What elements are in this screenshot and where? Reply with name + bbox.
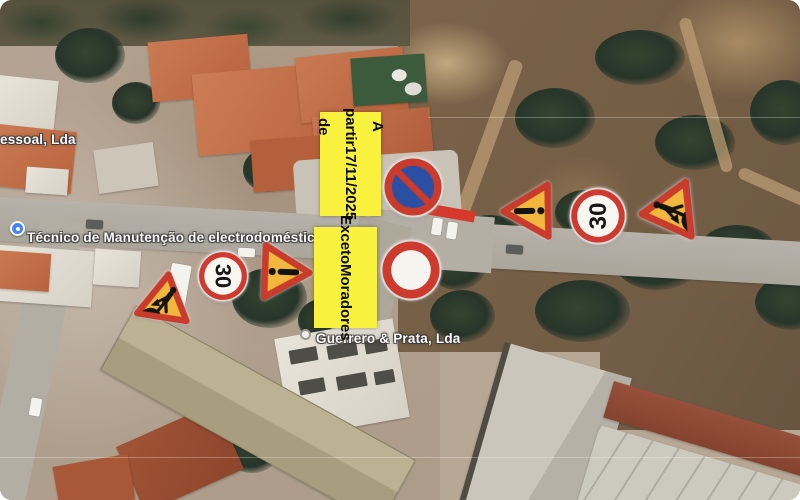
notice-exception-line2: Moradores (332, 264, 359, 341)
notice-start-date: A partir de 17/11/2025 (320, 112, 381, 216)
notice-start-line1: A partir de (310, 108, 391, 146)
roadworks-sign-left (132, 264, 198, 330)
skylight (298, 377, 326, 395)
warning-triangle-left (255, 241, 317, 303)
no-parking-sign (382, 156, 444, 218)
notice-exception-line1: Exceto (332, 215, 359, 264)
vehicle (506, 244, 524, 254)
satellite-map: essoal, Lda Técnico de Manutenção de ele… (0, 0, 800, 500)
skylight (374, 369, 396, 385)
white-building (93, 248, 141, 287)
no-entry-sign (380, 239, 442, 301)
imagery-seam (428, 117, 800, 118)
white-building (25, 167, 69, 196)
map-label-pessoal[interactable]: essoal, Lda (0, 132, 76, 147)
tree-canopy (515, 88, 595, 148)
pool-cover (391, 69, 407, 82)
notice-start-line2: 17/11/2025 (337, 146, 364, 220)
tree-canopy (595, 30, 685, 85)
skylight (336, 372, 368, 391)
notice-exception: Exceto Moradores (314, 227, 377, 328)
tree-canopy (55, 28, 125, 83)
pool-cover (404, 82, 422, 96)
pool (350, 53, 427, 106)
sign-white-field (391, 250, 431, 290)
speed-limit-sign-right: 30 (569, 187, 627, 245)
speed-limit-sign-left: 30 (197, 250, 249, 302)
warning-triangle-right (496, 180, 557, 241)
roadworks-sign-right (632, 177, 701, 246)
business-marker-icon[interactable] (300, 329, 311, 340)
imagery-seam (0, 457, 800, 458)
vehicle (86, 220, 103, 230)
business-marker-icon[interactable] (10, 221, 25, 236)
skylight (288, 346, 318, 365)
tree-canopy (535, 280, 630, 342)
speed-limit-value: 30 (585, 202, 612, 229)
terracotta-roof (0, 250, 51, 292)
shed-roof (93, 142, 159, 194)
speed-limit-value: 30 (211, 264, 236, 288)
